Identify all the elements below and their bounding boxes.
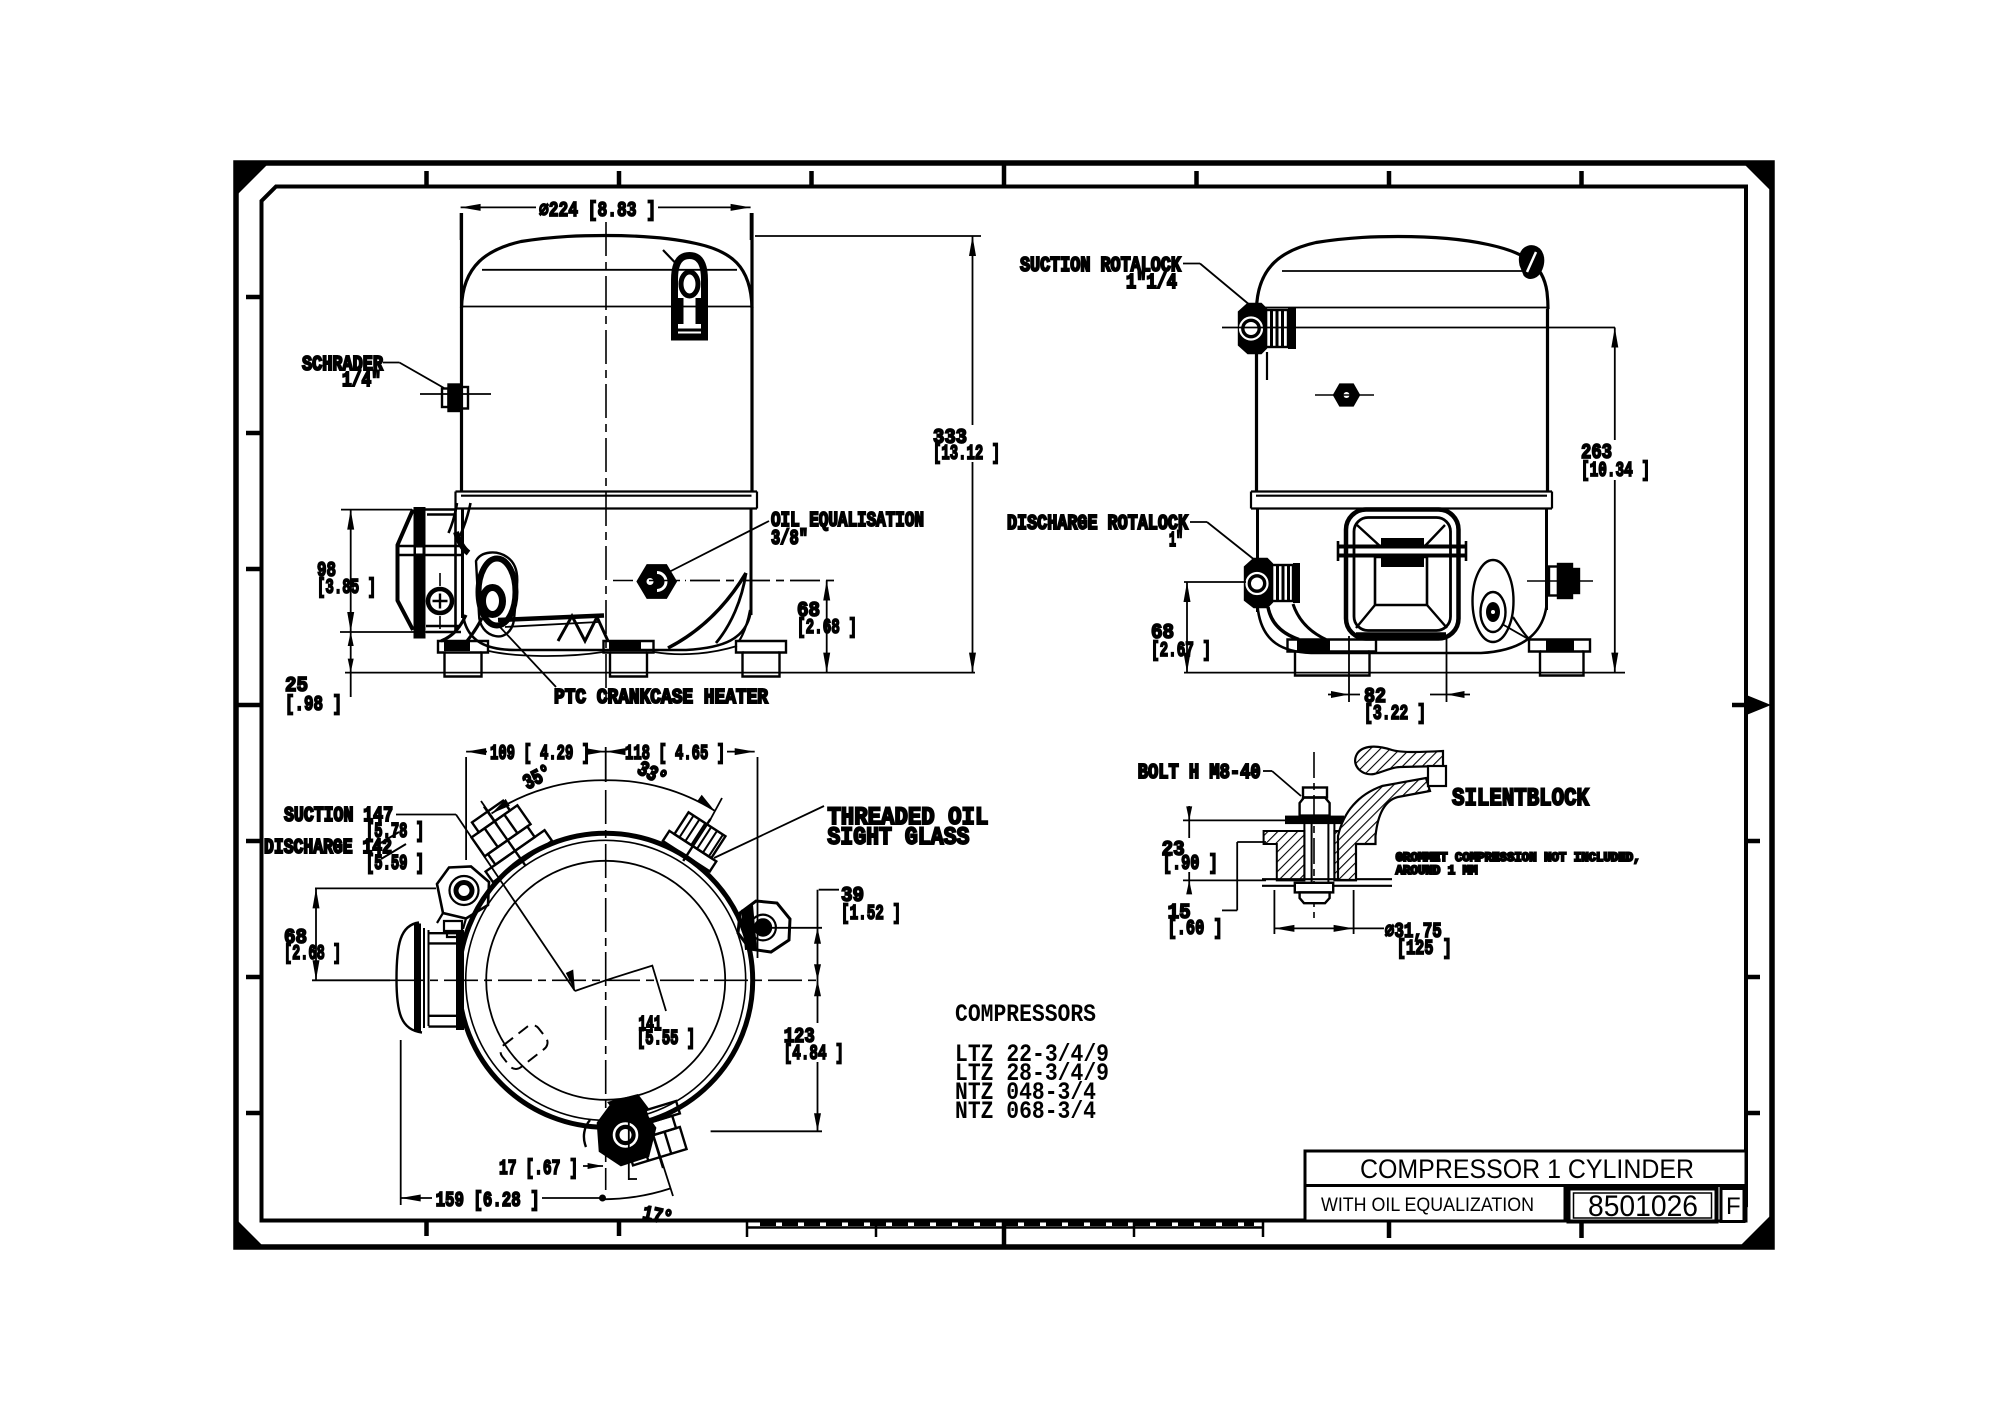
svg-text:SILENTBLOCK: SILENTBLOCK (1452, 784, 1589, 813)
svg-text:109 [ 4.29 ]: 109 [ 4.29 ] (490, 743, 590, 766)
svg-text:COMPRESSOR 1 CYLINDER: COMPRESSOR 1 CYLINDER (1360, 1154, 1694, 1184)
svg-text:1″: 1″ (1169, 530, 1183, 553)
svg-text:1/4″: 1/4″ (342, 370, 381, 393)
svg-text:[.60 ]: [.60 ] (1168, 918, 1223, 941)
svg-text:PTC CRANKCASE HEATER: PTC CRANKCASE HEATER (554, 687, 768, 710)
svg-text:[.98 ]: [.98 ] (285, 694, 342, 717)
svg-text:[5.55 ]: [5.55 ] (637, 1028, 695, 1051)
svg-text:SIGHT GLASS: SIGHT GLASS (827, 823, 969, 852)
svg-text:F: F (1726, 1193, 1741, 1220)
svg-text:17 [.67 ]: 17 [.67 ] (499, 1158, 578, 1181)
svg-text:BOLT H M8-40: BOLT H M8-40 (1138, 762, 1261, 785)
svg-text:3/8″: 3/8″ (771, 528, 808, 551)
svg-text:[.90 ]: [.90 ] (1163, 853, 1218, 876)
svg-text:[1.52 ]: [1.52 ] (841, 903, 901, 926)
svg-text:[2.68 ]: [2.68 ] (284, 943, 341, 966)
svg-text:[2.67 ]: [2.67 ] (1151, 640, 1211, 663)
svg-text:[125 ]: [125 ] (1397, 938, 1452, 961)
svg-text:AROUND 1 MM: AROUND 1 MM (1396, 863, 1478, 878)
svg-text:[2.68 ]: [2.68 ] (797, 617, 857, 640)
svg-text:∅224 [8.83 ]: ∅224 [8.83 ] (539, 200, 656, 223)
svg-text:NTZ 068-3/4: NTZ 068-3/4 (955, 1097, 1096, 1126)
svg-text:[10.34 ]: [10.34 ] (1581, 460, 1650, 483)
svg-text:[3.85 ]: [3.85 ] (317, 577, 376, 600)
svg-text:DISCHARGE ROTALOCK: DISCHARGE ROTALOCK (1007, 513, 1188, 536)
svg-text:COMPRESSORS: COMPRESSORS (955, 1000, 1096, 1029)
svg-text:1″1/4: 1″1/4 (1126, 272, 1177, 295)
svg-text:[5.59 ]: [5.59 ] (366, 853, 424, 876)
svg-text:WITH OIL EQUALIZATION: WITH OIL EQUALIZATION (1321, 1194, 1534, 1216)
svg-text:[3.22 ]: [3.22 ] (1364, 703, 1426, 726)
svg-text:[4.84 ]: [4.84 ] (784, 1043, 844, 1066)
svg-text:159 [6.28 ]: 159 [6.28 ] (436, 1190, 540, 1213)
svg-text:8501026: 8501026 (1588, 1190, 1698, 1223)
svg-text:[13.12 ]: [13.12 ] (933, 443, 1000, 466)
